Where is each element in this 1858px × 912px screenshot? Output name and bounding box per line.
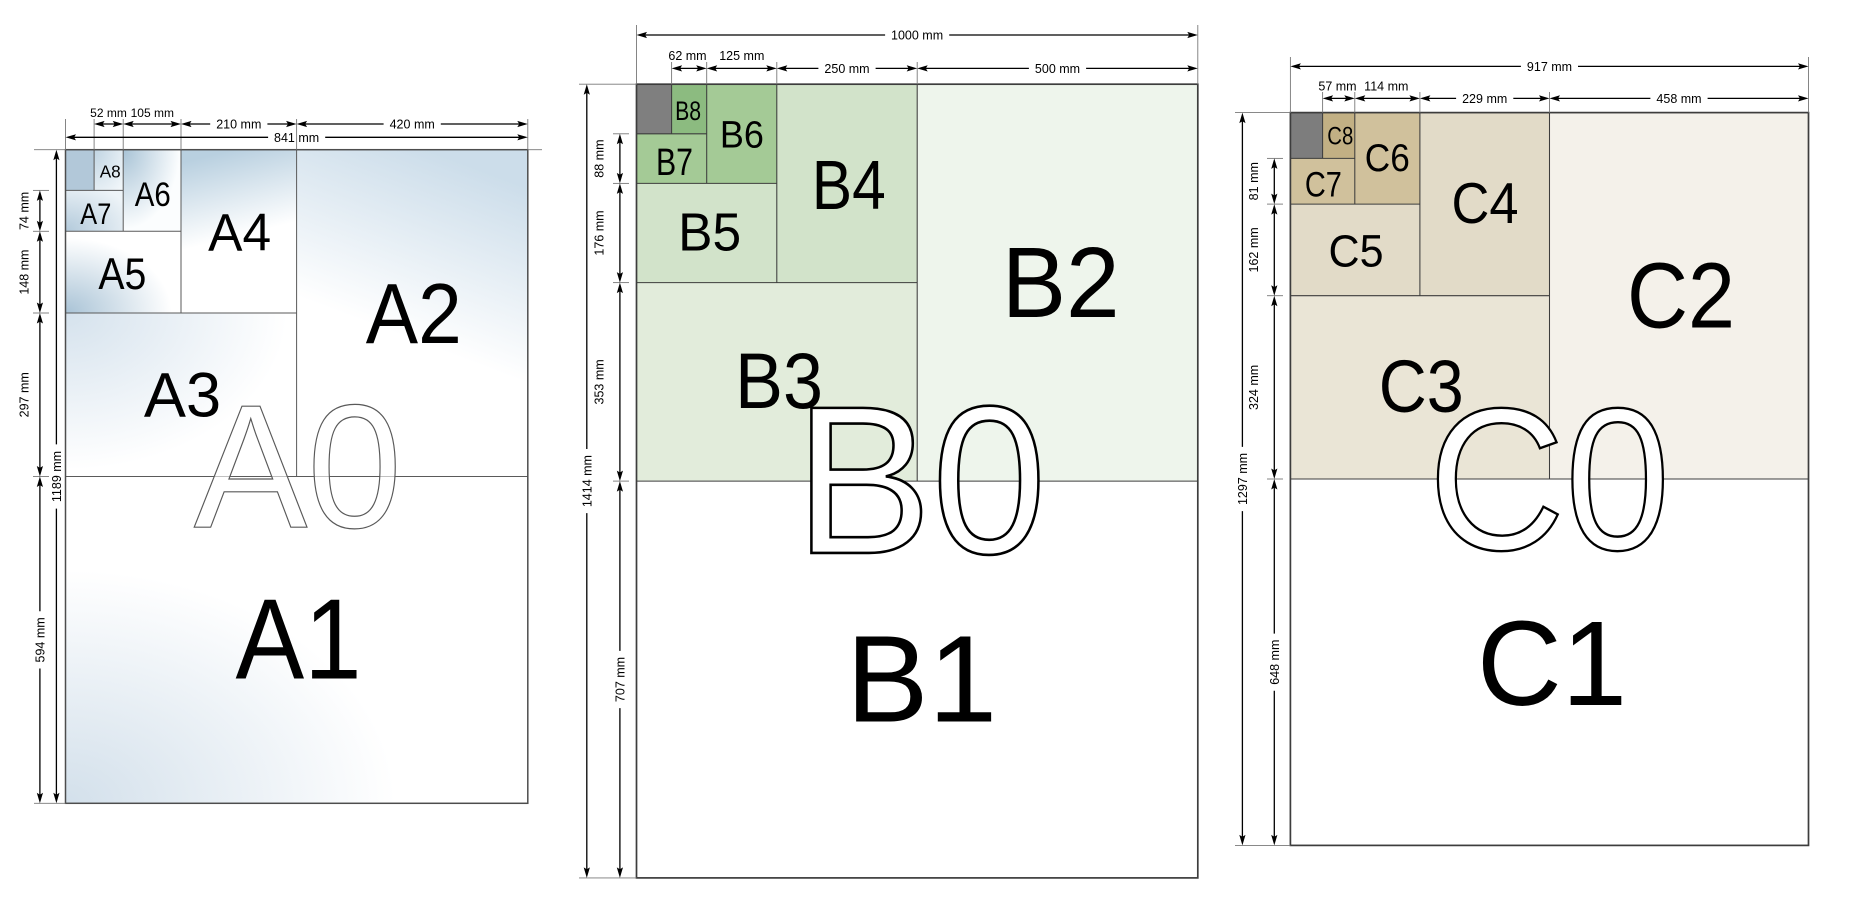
- svg-text:1414 mm: 1414 mm: [580, 455, 594, 507]
- svg-text:A6: A6: [135, 176, 171, 214]
- svg-text:A4: A4: [208, 204, 271, 263]
- svg-text:1189 mm: 1189 mm: [50, 451, 64, 502]
- svg-text:594 mm: 594 mm: [33, 617, 47, 662]
- svg-text:114 mm: 114 mm: [1364, 79, 1408, 93]
- svg-text:62 mm: 62 mm: [668, 49, 706, 63]
- svg-text:162 mm: 162 mm: [1247, 227, 1261, 272]
- svg-text:C6: C6: [1365, 137, 1410, 180]
- svg-text:A1: A1: [236, 577, 362, 704]
- svg-text:176 mm: 176 mm: [592, 210, 606, 255]
- svg-text:105 mm: 105 mm: [131, 106, 174, 120]
- svg-text:B0: B0: [795, 362, 1047, 598]
- svg-text:707 mm: 707 mm: [613, 657, 627, 702]
- svg-text:74 mm: 74 mm: [18, 192, 32, 230]
- svg-text:210 mm: 210 mm: [216, 118, 261, 132]
- svg-text:88 mm: 88 mm: [592, 139, 606, 177]
- svg-text:B3: B3: [735, 337, 823, 425]
- svg-text:250 mm: 250 mm: [824, 62, 869, 76]
- svg-text:81 mm: 81 mm: [1247, 162, 1261, 200]
- svg-text:1000 mm: 1000 mm: [891, 29, 943, 43]
- svg-text:420 mm: 420 mm: [390, 118, 435, 132]
- svg-text:B1: B1: [846, 610, 997, 748]
- svg-text:148 mm: 148 mm: [18, 250, 32, 295]
- svg-text:B2: B2: [1002, 227, 1120, 339]
- svg-text:B6: B6: [720, 114, 764, 156]
- svg-text:500 mm: 500 mm: [1035, 62, 1080, 76]
- svg-text:297 mm: 297 mm: [18, 372, 32, 417]
- svg-text:841 mm: 841 mm: [274, 131, 319, 145]
- svg-text:A3: A3: [144, 361, 221, 431]
- svg-text:353 mm: 353 mm: [592, 359, 606, 404]
- svg-text:A2: A2: [366, 266, 462, 362]
- svg-text:B8: B8: [675, 96, 701, 126]
- svg-text:A5: A5: [98, 250, 146, 299]
- svg-text:917 mm: 917 mm: [1527, 60, 1572, 74]
- svg-text:125 mm: 125 mm: [719, 49, 764, 63]
- svg-text:B7: B7: [656, 142, 693, 184]
- svg-text:A0: A0: [194, 369, 402, 565]
- svg-text:C1: C1: [1477, 596, 1627, 731]
- svg-text:1297 mm: 1297 mm: [1236, 453, 1250, 505]
- svg-text:B4: B4: [812, 146, 886, 224]
- svg-text:458 mm: 458 mm: [1656, 92, 1701, 106]
- svg-text:57 mm: 57 mm: [1318, 79, 1356, 93]
- svg-text:C2: C2: [1627, 243, 1735, 347]
- svg-text:52 mm: 52 mm: [90, 106, 127, 120]
- svg-text:C7: C7: [1305, 165, 1342, 204]
- svg-text:C3: C3: [1379, 345, 1464, 428]
- svg-text:324 mm: 324 mm: [1247, 365, 1261, 410]
- svg-text:C5: C5: [1329, 226, 1384, 277]
- svg-text:A7: A7: [80, 198, 111, 231]
- svg-text:648 mm: 648 mm: [1268, 640, 1282, 685]
- svg-text:A8: A8: [100, 162, 121, 182]
- svg-text:C4: C4: [1452, 172, 1519, 236]
- svg-text:C0: C0: [1428, 366, 1670, 592]
- svg-text:B5: B5: [678, 202, 741, 262]
- svg-text:229 mm: 229 mm: [1462, 92, 1507, 106]
- svg-text:C8: C8: [1327, 124, 1353, 151]
